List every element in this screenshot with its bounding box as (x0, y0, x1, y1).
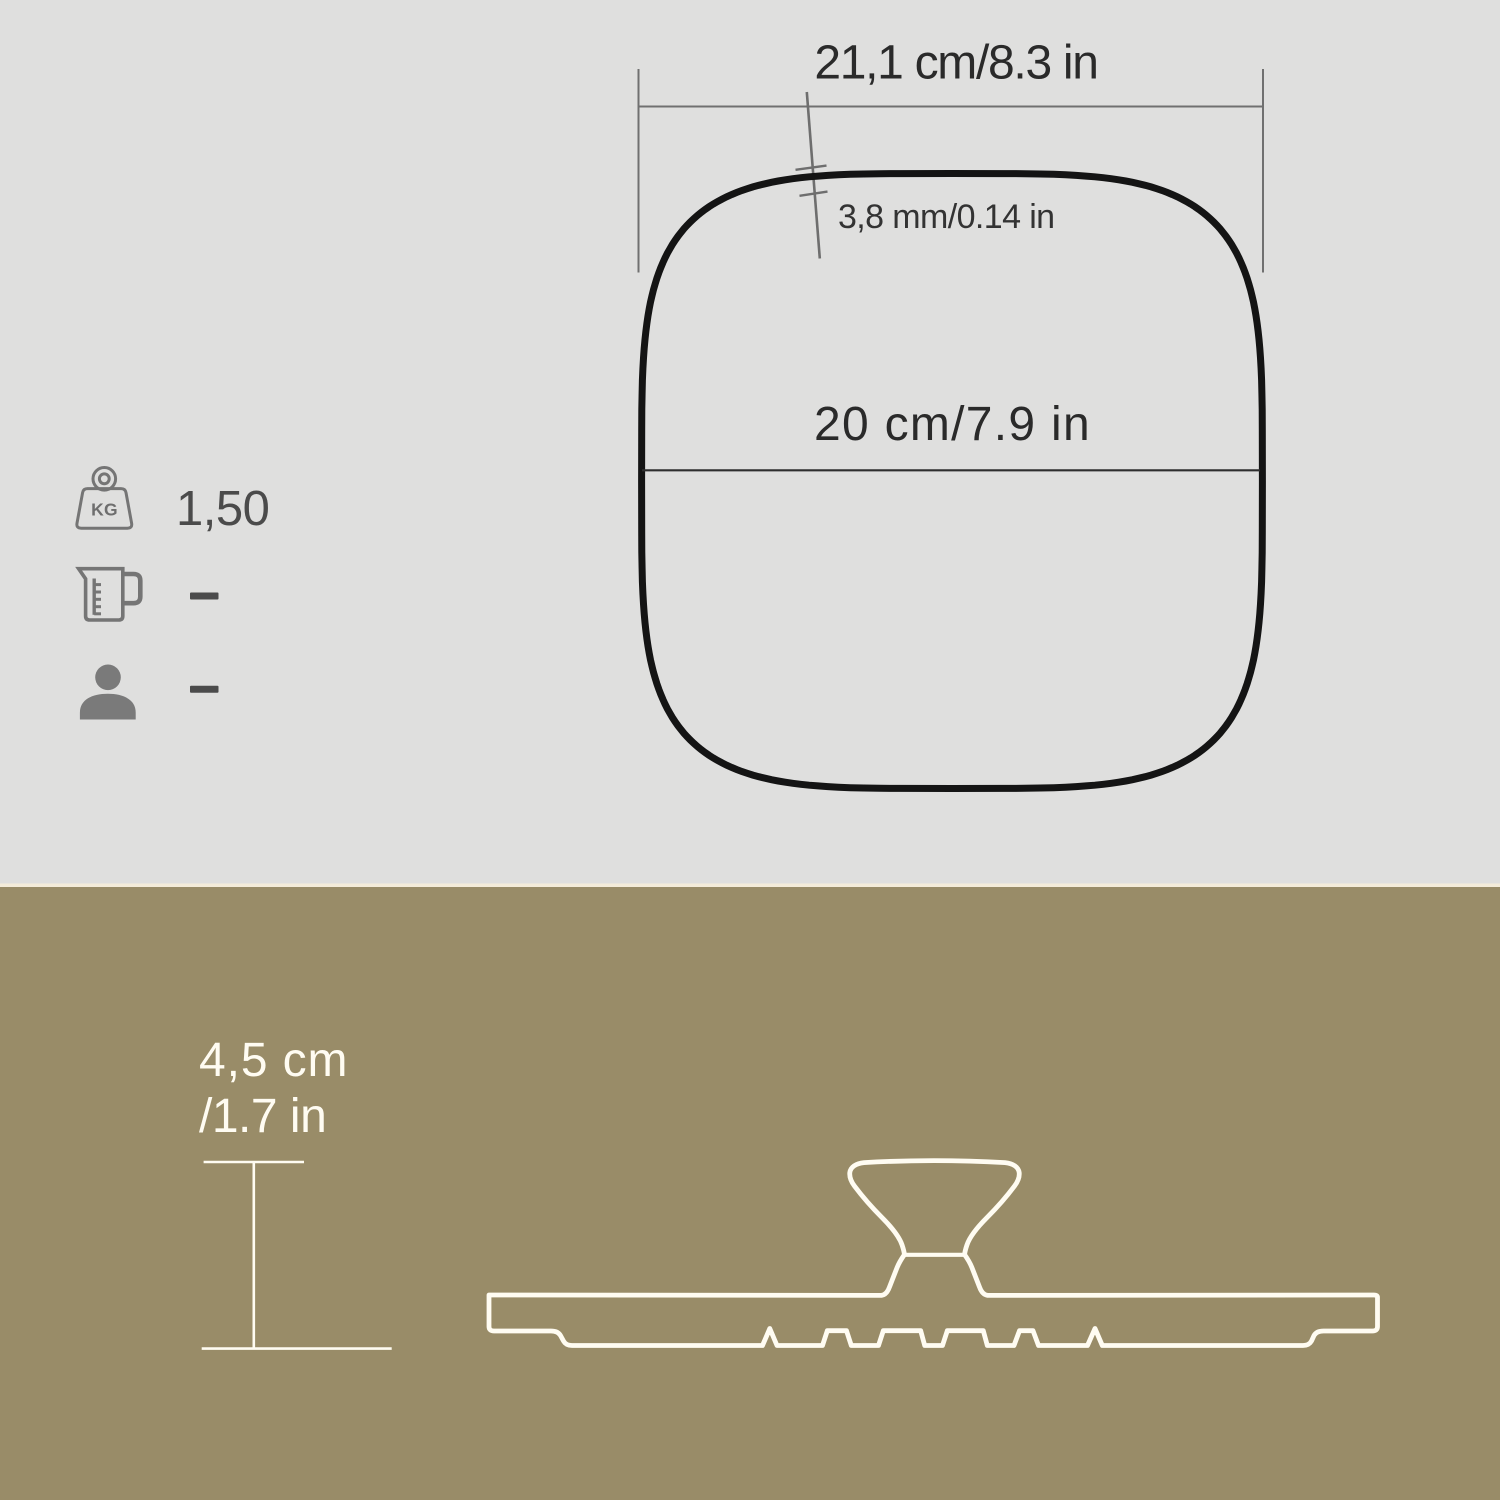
svg-text:1,50: 1,50 (176, 482, 269, 536)
svg-text:21,1 cm/8.3 in: 21,1 cm/8.3 in (814, 37, 1097, 90)
svg-text:4,5 cm: 4,5 cm (199, 1034, 348, 1087)
svg-text:KG: KG (91, 500, 118, 520)
svg-text:3,8 mm/0.14 in: 3,8 mm/0.14 in (838, 198, 1055, 236)
svg-text:/1.7 in: /1.7 in (199, 1090, 326, 1143)
svg-text:20 cm/7.9 in: 20 cm/7.9 in (814, 398, 1091, 451)
